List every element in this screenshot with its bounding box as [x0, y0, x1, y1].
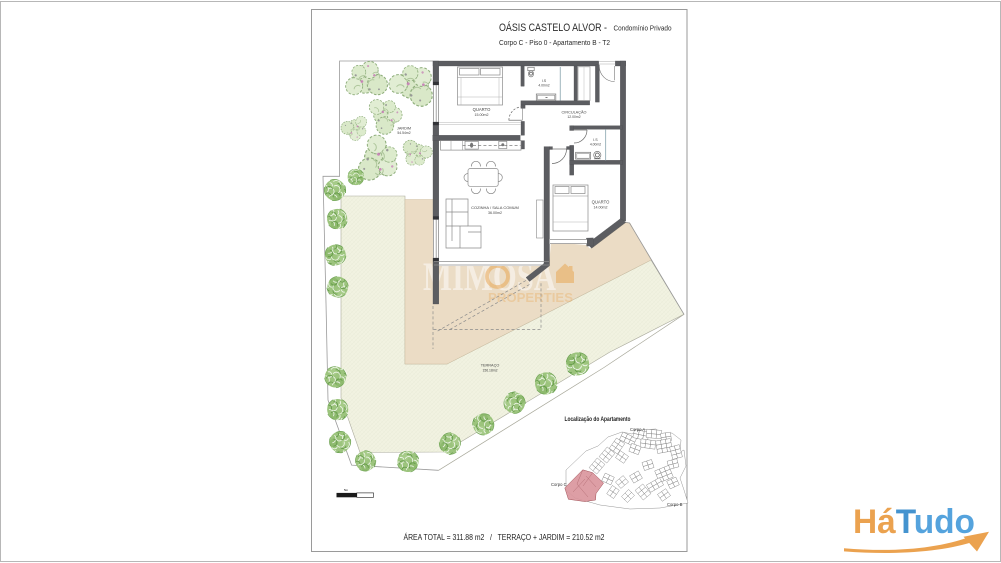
svg-text:ÁREA TOTAL = 311.88 m2 / T: ÁREA TOTAL = 311.88 m2 / TERRAÇO + JARDI… [404, 532, 605, 542]
svg-text:4.00m2: 4.00m2 [590, 143, 601, 147]
svg-text:QUARTO: QUARTO [473, 107, 492, 112]
svg-text:QUARTO: QUARTO [592, 200, 611, 205]
svg-text:Corpo B: Corpo B [667, 502, 683, 507]
svg-text:15.00m2: 15.00m2 [475, 113, 489, 117]
svg-text:OÁSIS CASTELO ALVOR -: OÁSIS CASTELO ALVOR - [499, 21, 607, 34]
svg-text:Corpo C - Piso 0 - Apartamento: Corpo C - Piso 0 - Apartamento B - T2 [499, 38, 610, 47]
svg-text:Condomínio Privado: Condomínio Privado [614, 24, 672, 33]
svg-text:54.54m2: 54.54m2 [397, 131, 410, 135]
svg-text:156.18m2: 156.18m2 [482, 369, 497, 373]
svg-text:4.00m2: 4.00m2 [538, 84, 549, 88]
svg-text:CIRCULAÇÃO: CIRCULAÇÃO [562, 110, 587, 115]
svg-text:TERRAÇO: TERRAÇO [481, 364, 500, 368]
svg-text:5m: 5m [344, 488, 349, 492]
svg-text:I.S: I.S [593, 138, 598, 142]
svg-text:14.00m2: 14.00m2 [594, 206, 608, 210]
svg-text:Localização do Apartamento: Localização do Apartamento [565, 416, 631, 423]
svg-text:JARDIM: JARDIM [397, 127, 411, 131]
svg-text:Corpo C: Corpo C [551, 482, 567, 487]
svg-text:Corpo A: Corpo A [630, 427, 645, 432]
svg-text:PROPERTIES: PROPERTIES [488, 291, 573, 305]
svg-text:I.S: I.S [542, 79, 547, 83]
svg-text:12.00m2: 12.00m2 [567, 115, 580, 119]
svg-text:36.00m2: 36.00m2 [488, 211, 502, 215]
svg-text:COZINHA / SALA COMUM: COZINHA / SALA COMUM [471, 205, 519, 210]
svg-text:HáTudo: HáTudo [853, 503, 975, 541]
